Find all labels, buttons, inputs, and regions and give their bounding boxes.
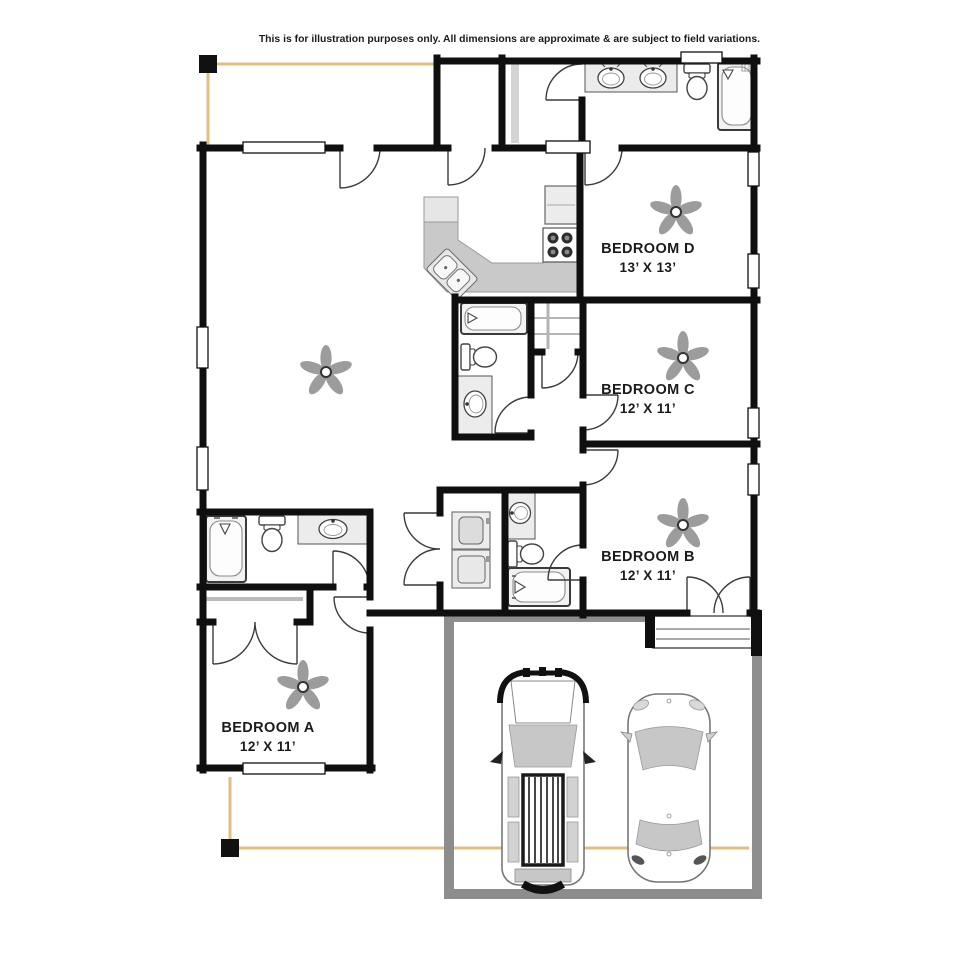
bathtub-icon xyxy=(206,516,246,582)
bedroom-b-door-swing xyxy=(583,450,618,485)
room-label-bedroom-a: BEDROOM A 12’ X 11’ xyxy=(221,720,314,754)
kitchen xyxy=(424,186,577,300)
bathroom-top xyxy=(511,61,755,143)
room-label-bedroom-b: BEDROOM B 12’ X 11’ xyxy=(601,549,695,583)
ceiling-fan-icon xyxy=(656,498,711,550)
ceiling-fan-icon xyxy=(656,331,711,383)
front-door-swing xyxy=(340,148,380,188)
room-name: BEDROOM A xyxy=(221,720,314,736)
room-name: BEDROOM B xyxy=(601,549,695,565)
entry-closet-door-swing xyxy=(448,148,485,185)
room-label-bedroom-d: BEDROOM D 13’ X 13’ xyxy=(601,241,695,275)
linen-closet-shelves xyxy=(534,303,580,349)
range-icon xyxy=(543,228,577,262)
bathtub-icon xyxy=(508,568,570,606)
window xyxy=(748,464,759,495)
vanity-sink-icon xyxy=(458,376,492,434)
disclaimer-text: This is for illustration purposes only. … xyxy=(259,34,760,45)
bedroom-a-door-swing xyxy=(334,597,370,633)
laundry-double-door-swing xyxy=(404,513,440,585)
closet-a-double-door-swing xyxy=(213,622,297,664)
pickup-truck-icon xyxy=(490,667,596,890)
side-mirror xyxy=(621,732,632,742)
room-dims: 12’ X 11’ xyxy=(620,568,676,583)
toilet-icon xyxy=(508,541,544,567)
room-label-bedroom-c: BEDROOM C 12’ X 11’ xyxy=(601,382,695,416)
vanity-sink-icon xyxy=(506,492,535,539)
sedan-car-icon xyxy=(621,694,717,882)
bedroom-c-door-swing xyxy=(583,395,618,430)
room-name: BEDROOM D xyxy=(601,241,695,257)
window xyxy=(748,408,759,438)
hall-wall-stripe xyxy=(511,61,519,143)
room-dims: 12’ X 11’ xyxy=(240,739,296,754)
window xyxy=(748,152,759,186)
kitchen-upper-cabinet xyxy=(424,197,458,222)
side-mirror xyxy=(583,751,596,764)
side-mirror xyxy=(706,732,717,742)
laundry-room xyxy=(452,512,490,588)
garage-step xyxy=(653,616,753,648)
bath2-door-swing xyxy=(495,397,531,433)
window xyxy=(748,254,759,288)
room-dims: 13’ X 13’ xyxy=(620,260,677,275)
window xyxy=(197,327,208,368)
toilet-icon xyxy=(461,344,497,370)
bedroom-b-french-door-swing xyxy=(687,577,750,613)
ceiling-fan-icon xyxy=(299,345,354,397)
bathtub-icon xyxy=(461,303,527,334)
floor-plan-page: This is for illustration purposes only. … xyxy=(0,0,963,963)
window xyxy=(243,142,325,153)
bathtub-icon xyxy=(718,62,755,130)
ceiling-fan-icon xyxy=(649,185,704,237)
linen-closet-door-swing xyxy=(542,352,578,388)
room-dims: 12’ X 11’ xyxy=(620,401,676,416)
bath-a-door-swing xyxy=(333,551,369,587)
ceiling-fan-icon xyxy=(276,660,331,712)
garage xyxy=(449,613,757,894)
floor-plan-drawing: This is for illustration purposes only. … xyxy=(0,0,963,963)
cased-opening xyxy=(546,141,590,153)
window xyxy=(681,52,722,63)
toilet-icon xyxy=(684,64,710,100)
bathroom-middle xyxy=(458,303,580,434)
porch-post xyxy=(199,55,217,73)
step-wall-stub xyxy=(645,610,655,648)
vanity-sink-icon xyxy=(298,514,367,544)
room-name: BEDROOM C xyxy=(601,382,695,398)
washer-dryer-stack-icon xyxy=(452,512,490,588)
porch-post xyxy=(221,839,239,857)
step-wall-stub xyxy=(751,610,762,656)
side-mirror xyxy=(490,751,503,764)
window xyxy=(197,447,208,490)
hall-bath-door-swing xyxy=(546,64,582,100)
window xyxy=(243,763,325,774)
front-porch-line xyxy=(208,64,437,145)
toilet-icon xyxy=(259,516,285,552)
